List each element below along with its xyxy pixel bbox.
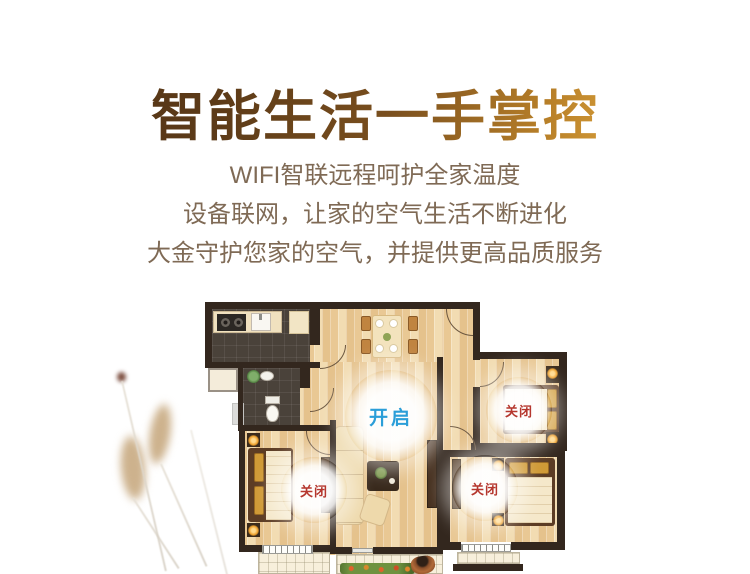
bed-pillow xyxy=(254,453,264,482)
status-bubble-bedroom-top-right[interactable]: 关闭 xyxy=(486,377,552,443)
plate xyxy=(375,319,384,328)
dining-chair xyxy=(408,316,418,331)
wall-segment xyxy=(239,545,262,552)
nightstand xyxy=(546,366,559,383)
wall-segment xyxy=(205,302,212,368)
stove-burner xyxy=(234,318,243,327)
table-plant xyxy=(375,467,387,479)
wall-segment xyxy=(443,450,565,457)
table-dish xyxy=(389,478,395,484)
toilet-tank xyxy=(265,396,280,404)
wall-segment xyxy=(373,547,443,554)
grass-stem xyxy=(132,497,179,569)
wall-segment xyxy=(473,387,480,443)
dining-chair xyxy=(361,339,371,354)
nightstand xyxy=(247,523,260,537)
window xyxy=(461,544,511,552)
bed-pillow xyxy=(254,486,264,515)
bed-pillow xyxy=(530,462,549,474)
wall-segment xyxy=(453,564,523,571)
wall-segment xyxy=(559,352,567,450)
balcony-door xyxy=(352,548,373,553)
planter-greenery xyxy=(340,563,415,574)
balcony-right xyxy=(457,552,520,564)
utility-alcove xyxy=(208,368,238,392)
tv-cabinet xyxy=(427,440,437,508)
lamp-glow-icon xyxy=(248,435,259,446)
center-dish xyxy=(383,333,391,341)
plate xyxy=(375,344,384,353)
dining-chair xyxy=(361,316,371,331)
floorplan: 开启 关闭 关闭 关闭 xyxy=(203,300,568,574)
window xyxy=(262,545,313,554)
wall-segment xyxy=(443,542,461,550)
lamp-glow-icon xyxy=(547,368,558,379)
faucet xyxy=(259,314,262,320)
grass-bud xyxy=(117,372,126,382)
page-title: 智能生活一手掌控 xyxy=(0,72,750,151)
toilet-bowl xyxy=(266,405,279,422)
wall-segment xyxy=(205,302,480,309)
wall-segment xyxy=(239,425,245,552)
wall-segment xyxy=(300,368,310,388)
vanity-plant xyxy=(247,370,260,383)
wall-segment xyxy=(478,352,567,359)
grass-head xyxy=(117,433,149,503)
subtitle-line-3: 大金守护您家的空气，并提供更高品质服务 xyxy=(0,234,750,273)
subtitle-line-1: WIFI智联远程呵护全家温度 xyxy=(0,156,750,195)
status-label: 关闭 xyxy=(505,401,533,420)
wall-segment xyxy=(310,307,320,345)
plate xyxy=(389,319,398,328)
stove-burner xyxy=(221,318,230,327)
wall-segment xyxy=(238,362,243,431)
nightstand xyxy=(247,433,260,447)
status-bubble-bedroom-bottom-right[interactable]: 关闭 xyxy=(452,455,518,521)
lamp-glow-icon xyxy=(248,525,259,536)
status-label: 开启 xyxy=(369,403,413,430)
fridge xyxy=(289,311,309,334)
status-bubble-living-room[interactable]: 开启 xyxy=(345,370,437,462)
subtitle-block: WIFI智联远程呵护全家温度 设备联网，让家的空气生活不断进化 大金守护您家的空… xyxy=(0,156,750,273)
plate xyxy=(389,344,398,353)
wall-segment xyxy=(330,547,352,554)
wall-segment xyxy=(511,542,565,550)
dining-chair xyxy=(408,339,418,354)
grass-head xyxy=(144,401,176,468)
promo-banner: 智能生活一手掌控 WIFI智联远程呵护全家温度 设备联网，让家的空气生活不断进化… xyxy=(0,0,750,574)
grass-stem xyxy=(160,464,207,567)
grass-stem xyxy=(121,381,167,571)
status-bubble-bedroom-bottom-left[interactable]: 关闭 xyxy=(281,457,347,523)
subtitle-line-2: 设备联网，让家的空气生活不断进化 xyxy=(0,195,750,234)
wall-segment xyxy=(443,450,450,542)
wall-segment xyxy=(557,450,565,550)
status-label: 关闭 xyxy=(471,479,499,498)
status-label: 关闭 xyxy=(300,481,328,500)
balcony-left xyxy=(258,552,330,574)
wash-basin xyxy=(260,371,274,381)
white-patch xyxy=(239,552,258,574)
